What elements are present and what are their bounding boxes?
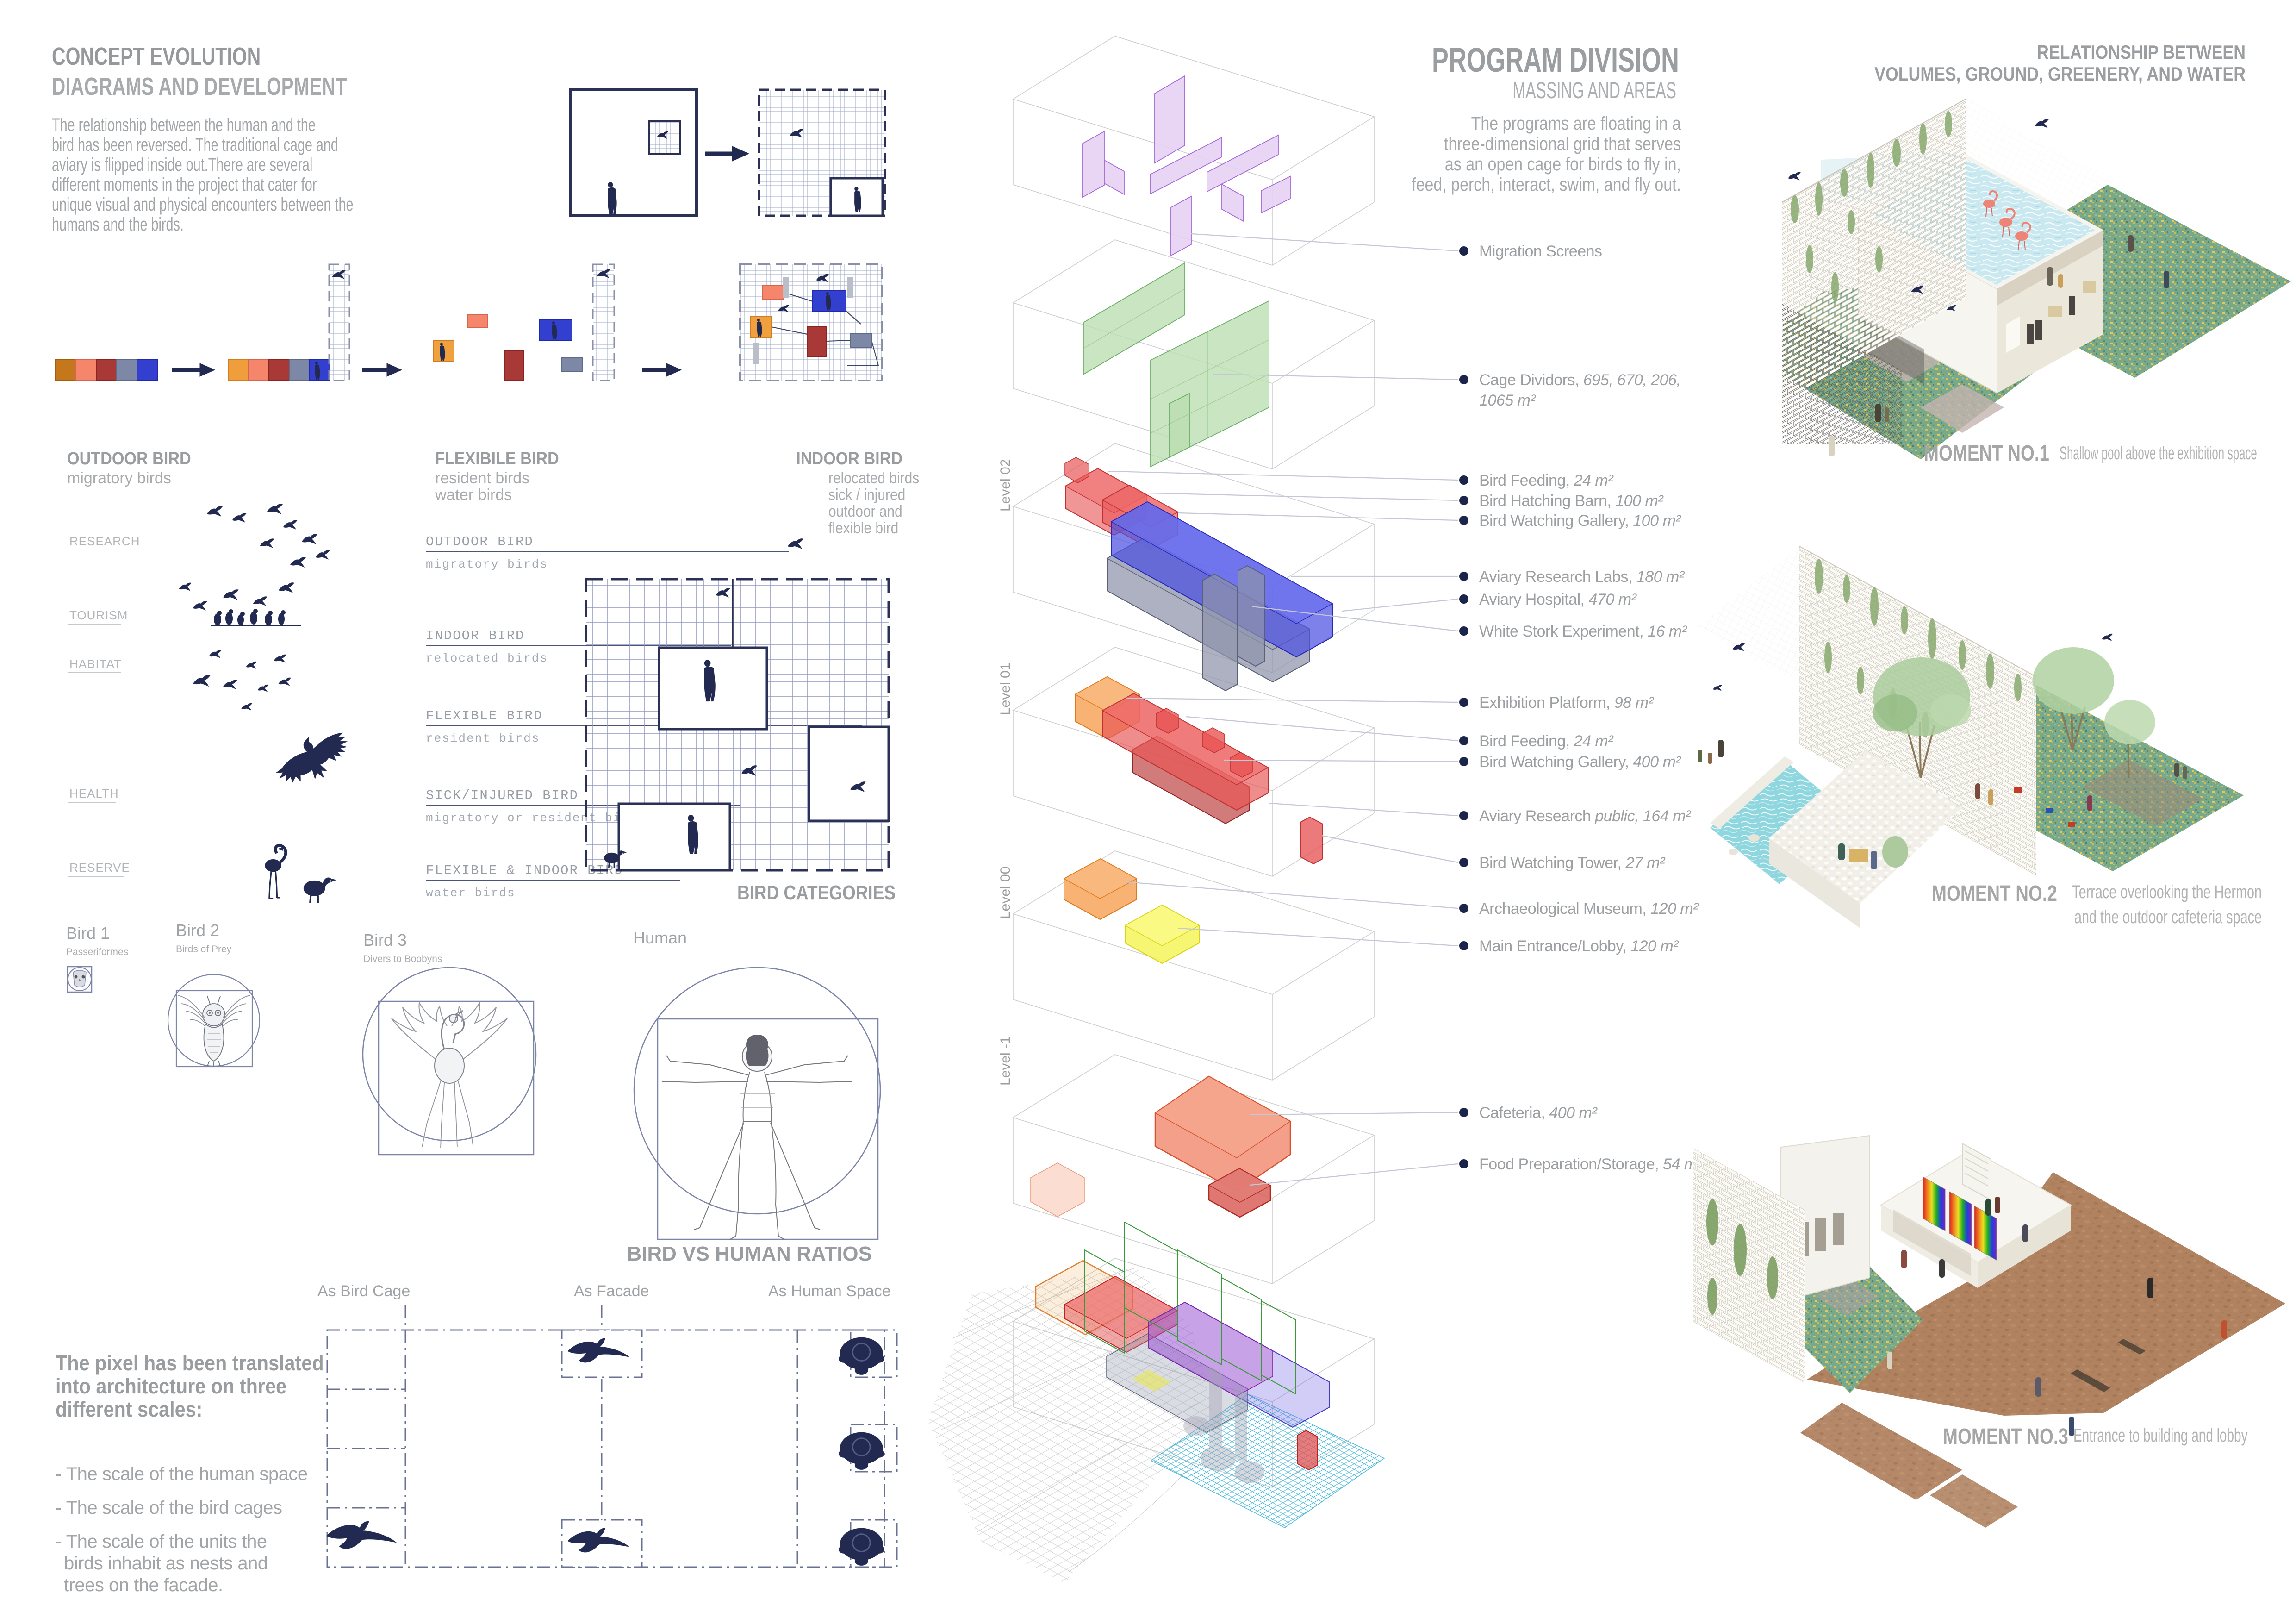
svg-text:BIRD CATEGORIES: BIRD CATEGORIES <box>737 881 896 904</box>
svg-text:birds inhabit as nests and: birds inhabit as nests and <box>64 1553 268 1574</box>
svg-text:As Facade: As Facade <box>574 1282 649 1300</box>
svg-text:Terrace overlooking the Hermon: Terrace overlooking the Hermon <box>2072 881 2262 902</box>
svg-text:The programs are floating in a: The programs are floating in a <box>1471 112 1681 133</box>
svg-text:relocated birds: relocated birds <box>426 651 548 665</box>
svg-text:relocated birds: relocated birds <box>828 469 919 487</box>
svg-text:HEALTH: HEALTH <box>69 787 119 800</box>
svg-text:DIAGRAMS AND DEVELOPMENT: DIAGRAMS AND DEVELOPMENT <box>52 73 347 100</box>
svg-text:outdoor and: outdoor and <box>828 502 902 520</box>
svg-text:Bird 2: Bird 2 <box>176 921 219 940</box>
svg-text:INDOOR BIRD: INDOOR BIRD <box>426 628 524 643</box>
svg-text:RESEARCH: RESEARCH <box>69 534 140 548</box>
svg-text:MASSING AND AREAS: MASSING AND AREAS <box>1512 77 1676 103</box>
svg-text:MOMENT NO.3: MOMENT NO.3 <box>1943 1424 2068 1449</box>
svg-text:TOURISM: TOURISM <box>69 608 128 622</box>
svg-text:As Human Space: As Human Space <box>768 1282 891 1300</box>
svg-text:flexible bird: flexible bird <box>828 519 898 537</box>
svg-text:unique visual and physical enc: unique visual and physical encounters be… <box>52 194 353 215</box>
svg-text:Food Preparation/Storage, 54 m: Food Preparation/Storage, 54 m² <box>1479 1156 1703 1173</box>
svg-text:- The scale of the human space: - The scale of the human space <box>56 1464 308 1484</box>
svg-text:VOLUMES, GROUND, GREENERY, AND: VOLUMES, GROUND, GREENERY, AND WATER <box>1874 63 2246 85</box>
svg-text:RELATIONSHIP BETWEEN: RELATIONSHIP BETWEEN <box>2037 42 2246 63</box>
svg-text:FLEXIBLE BIRD: FLEXIBLE BIRD <box>426 708 542 724</box>
svg-text:bird has been reversed. The tr: bird has been reversed. The traditional … <box>52 134 338 155</box>
svg-text:sick / injured: sick / injured <box>828 486 905 503</box>
svg-text:as an open cage for birds to f: as an open cage for birds to fly in, <box>1445 153 1681 174</box>
svg-text:Entrance to building and lobby: Entrance to building and lobby <box>2073 1425 2248 1446</box>
svg-text:water birds: water birds <box>435 486 512 504</box>
svg-text:Aviary Research public, 164 m²: Aviary Research public, 164 m² <box>1479 807 1692 825</box>
svg-text:Level 01: Level 01 <box>998 663 1013 715</box>
svg-text:SICK/INJURED BIRD: SICK/INJURED BIRD <box>426 788 579 803</box>
svg-text:trees on the facade.: trees on the facade. <box>64 1575 223 1595</box>
svg-text:aviary is flipped inside out.T: aviary is flipped inside out.There are s… <box>52 154 312 175</box>
svg-text:into architecture on three: into architecture on three <box>56 1374 286 1399</box>
svg-text:different moments in the proje: different moments in the project that ca… <box>52 174 317 195</box>
svg-text:migratory birds: migratory birds <box>67 469 171 487</box>
svg-text:humans and the birds.: humans and the birds. <box>52 214 184 235</box>
svg-text:Bird Feeding, 24 m²: Bird Feeding, 24 m² <box>1479 472 1614 489</box>
svg-text:Bird Watching Tower, 27 m²: Bird Watching Tower, 27 m² <box>1479 854 1666 872</box>
svg-text:OUTDOOR BIRD: OUTDOOR BIRD <box>426 534 534 550</box>
svg-text:White Stork Experiment, 16 m²: White Stork Experiment, 16 m² <box>1479 623 1688 640</box>
svg-text:1065 m²: 1065 m² <box>1479 392 1536 409</box>
svg-text:Main Entrance/Lobby, 120 m²: Main Entrance/Lobby, 120 m² <box>1479 937 1679 955</box>
svg-text:RESERVE: RESERVE <box>69 861 130 874</box>
svg-text:As Bird Cage: As Bird Cage <box>317 1282 410 1300</box>
svg-text:Passeriformes: Passeriformes <box>66 947 128 957</box>
svg-text:Bird Watching Gallery, 400 m²: Bird Watching Gallery, 400 m² <box>1479 753 1681 771</box>
svg-text:different scales:: different scales: <box>56 1398 202 1422</box>
svg-text:resident birds: resident birds <box>426 731 540 745</box>
svg-text:Level 02: Level 02 <box>998 459 1013 512</box>
svg-text:Shallow pool above the exhibit: Shallow pool above the exhibition space <box>2060 443 2257 463</box>
svg-text:The relationship between the h: The relationship between the human and t… <box>52 114 316 135</box>
svg-text:Level 00: Level 00 <box>998 867 1013 919</box>
svg-text:Exhibition Platform, 98 m²: Exhibition Platform, 98 m² <box>1479 694 1654 712</box>
svg-text:INDOOR BIRD: INDOOR BIRD <box>796 448 902 468</box>
svg-text:CONCEPT EVOLUTION: CONCEPT EVOLUTION <box>52 43 261 71</box>
svg-text:and the outdoor cafeteria spac: and the outdoor cafeteria space <box>2074 906 2262 927</box>
svg-text:Aviary Hospital, 470 m²: Aviary Hospital, 470 m² <box>1479 591 1637 608</box>
svg-text:Human: Human <box>633 928 687 947</box>
svg-text:BIRD VS HUMAN RATIOS: BIRD VS HUMAN RATIOS <box>627 1243 872 1265</box>
svg-text:Bird Watching Gallery, 100 m²: Bird Watching Gallery, 100 m² <box>1479 512 1681 530</box>
svg-text:Divers to Boobyns: Divers to Boobyns <box>363 954 442 964</box>
svg-text:Aviary Research Labs, 180 m²: Aviary Research Labs, 180 m² <box>1479 568 1685 586</box>
svg-text:PROGRAM DIVISION: PROGRAM DIVISION <box>1432 41 1679 79</box>
svg-text:Cafeteria, 400 m²: Cafeteria, 400 m² <box>1479 1104 1598 1122</box>
svg-text:Cage Dividors, 695, 670, 206,: Cage Dividors, 695, 670, 206, <box>1479 371 1680 389</box>
svg-text:The pixel has been translated: The pixel has been translated <box>56 1351 324 1375</box>
svg-text:Birds of Prey: Birds of Prey <box>176 944 232 955</box>
svg-text:feed, perch, interact, swim, a: feed, perch, interact, swim, and fly out… <box>1412 174 1681 194</box>
svg-text:HABITAT: HABITAT <box>69 657 122 671</box>
svg-text:Bird Hatching Barn, 100 m²: Bird Hatching Barn, 100 m² <box>1479 492 1664 510</box>
svg-text:water birds: water birds <box>426 886 516 900</box>
svg-text:MOMENT NO.1: MOMENT NO.1 <box>1924 441 2049 466</box>
svg-text:- The scale of the units the: - The scale of the units the <box>56 1531 267 1552</box>
svg-text:resident birds: resident birds <box>435 469 529 487</box>
svg-text:Bird Feeding, 24 m²: Bird Feeding, 24 m² <box>1479 732 1614 750</box>
svg-text:MOMENT NO.2: MOMENT NO.2 <box>1932 881 2057 906</box>
svg-text:OUTDOOR BIRD: OUTDOOR BIRD <box>67 448 191 468</box>
svg-text:- The scale of the bird cages: - The scale of the bird cages <box>56 1498 282 1518</box>
svg-text:three-dimensional grid that se: three-dimensional grid that serves <box>1444 133 1681 154</box>
svg-text:Level -1: Level -1 <box>998 1036 1013 1086</box>
svg-text:FLEXIBILE BIRD: FLEXIBILE BIRD <box>435 448 559 468</box>
svg-text:Bird 3: Bird 3 <box>363 931 407 949</box>
svg-text:Bird 1: Bird 1 <box>66 924 110 943</box>
svg-text:migratory birds: migratory birds <box>426 557 548 571</box>
svg-text:Migration Screens: Migration Screens <box>1479 243 1602 260</box>
svg-text:Archaeological Museum, 120 m²: Archaeological Museum, 120 m² <box>1479 900 1699 918</box>
